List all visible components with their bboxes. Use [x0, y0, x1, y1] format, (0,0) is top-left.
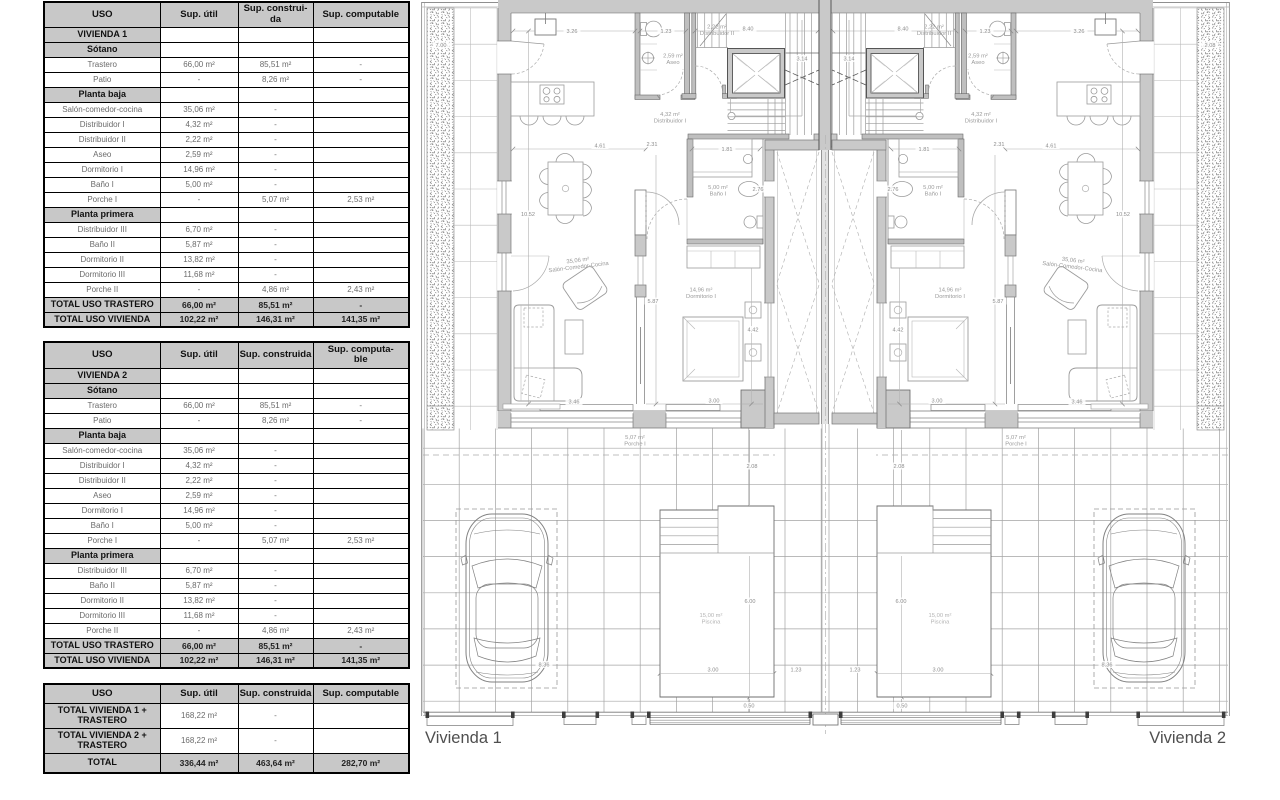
svg-text:14,96 m²: 14,96 m² — [690, 288, 713, 294]
svg-text:10.52: 10.52 — [1116, 212, 1130, 218]
svg-text:1.23: 1.23 — [850, 668, 861, 674]
svg-text:2,59 m²: 2,59 m² — [968, 54, 988, 60]
svg-text:2.31: 2.31 — [647, 142, 658, 148]
svg-text:2.76: 2.76 — [753, 187, 764, 193]
svg-text:Porche I: Porche I — [1005, 442, 1027, 448]
svg-text:Porche I: Porche I — [624, 442, 646, 448]
svg-text:Dormitorio I: Dormitorio I — [935, 294, 965, 300]
svg-text:3.14: 3.14 — [797, 57, 808, 63]
svg-text:Distribuidor I: Distribuidor I — [654, 119, 687, 125]
svg-text:15,00 m²: 15,00 m² — [700, 613, 723, 619]
svg-text:Distribuidor I: Distribuidor I — [965, 119, 998, 125]
svg-text:3.00: 3.00 — [933, 668, 944, 674]
svg-text:Vivienda 2: Vivienda 2 — [1149, 729, 1226, 747]
svg-text:2.08: 2.08 — [894, 464, 905, 470]
svg-text:0.50: 0.50 — [897, 704, 908, 710]
svg-text:3.00: 3.00 — [708, 668, 719, 674]
svg-text:1.23: 1.23 — [980, 29, 991, 35]
svg-text:Dormitorio I: Dormitorio I — [686, 294, 716, 300]
svg-text:Distribuidor II: Distribuidor II — [917, 31, 952, 37]
svg-text:2.08: 2.08 — [1205, 43, 1216, 49]
svg-text:3.46: 3.46 — [569, 400, 580, 406]
svg-text:8.40: 8.40 — [743, 27, 754, 33]
svg-text:8.36: 8.36 — [1102, 663, 1113, 669]
svg-text:8.36: 8.36 — [539, 663, 550, 669]
svg-text:2.31: 2.31 — [994, 142, 1005, 148]
svg-text:15,00 m²: 15,00 m² — [929, 613, 952, 619]
svg-text:3.14: 3.14 — [844, 57, 855, 63]
svg-text:4.61: 4.61 — [595, 144, 606, 150]
svg-text:1.23: 1.23 — [791, 668, 802, 674]
svg-text:Baño I: Baño I — [710, 192, 727, 198]
svg-text:6.00: 6.00 — [745, 599, 756, 605]
svg-text:3.00: 3.00 — [709, 399, 720, 405]
svg-text:1.81: 1.81 — [919, 147, 930, 153]
svg-text:2,59 m²: 2,59 m² — [663, 54, 683, 60]
svg-text:4,32 m²: 4,32 m² — [660, 112, 680, 118]
svg-text:Vivienda 1: Vivienda 1 — [425, 729, 502, 747]
svg-text:5,00 m²: 5,00 m² — [923, 185, 943, 191]
svg-text:3.26: 3.26 — [567, 29, 578, 35]
svg-text:4.61: 4.61 — [1046, 144, 1057, 150]
svg-text:2,22 m²: 2,22 m² — [924, 25, 944, 31]
svg-text:Aseo: Aseo — [971, 60, 984, 66]
svg-text:2.76: 2.76 — [888, 187, 899, 193]
svg-text:5,07 m²: 5,07 m² — [625, 435, 645, 441]
svg-text:2,22 m²: 2,22 m² — [707, 25, 727, 31]
svg-text:3.46: 3.46 — [1072, 400, 1083, 406]
svg-text:5.87: 5.87 — [648, 299, 659, 305]
svg-text:6.00: 6.00 — [896, 599, 907, 605]
svg-text:Piscina: Piscina — [931, 620, 950, 626]
svg-text:2.08: 2.08 — [747, 464, 758, 470]
svg-text:Baño I: Baño I — [925, 192, 942, 198]
svg-text:3.26: 3.26 — [1074, 29, 1085, 35]
svg-text:3.00: 3.00 — [932, 399, 943, 405]
svg-text:4,32 m²: 4,32 m² — [971, 112, 991, 118]
svg-text:1.81: 1.81 — [722, 147, 733, 153]
svg-text:Aseo: Aseo — [666, 60, 679, 66]
svg-text:1.23: 1.23 — [661, 29, 672, 35]
svg-text:14,96 m²: 14,96 m² — [939, 288, 962, 294]
svg-text:5,00 m²: 5,00 m² — [708, 185, 728, 191]
svg-text:7.00: 7.00 — [436, 43, 447, 49]
svg-text:Piscina: Piscina — [702, 620, 721, 626]
svg-text:4.42: 4.42 — [748, 328, 759, 334]
svg-text:0.50: 0.50 — [744, 704, 755, 710]
svg-text:Distribuidor II: Distribuidor II — [700, 31, 735, 37]
svg-text:10.52: 10.52 — [521, 212, 535, 218]
svg-text:4.42: 4.42 — [893, 328, 904, 334]
svg-text:5.87: 5.87 — [993, 299, 1004, 305]
svg-text:5,07 m²: 5,07 m² — [1006, 435, 1026, 441]
svg-text:8.40: 8.40 — [898, 27, 909, 33]
